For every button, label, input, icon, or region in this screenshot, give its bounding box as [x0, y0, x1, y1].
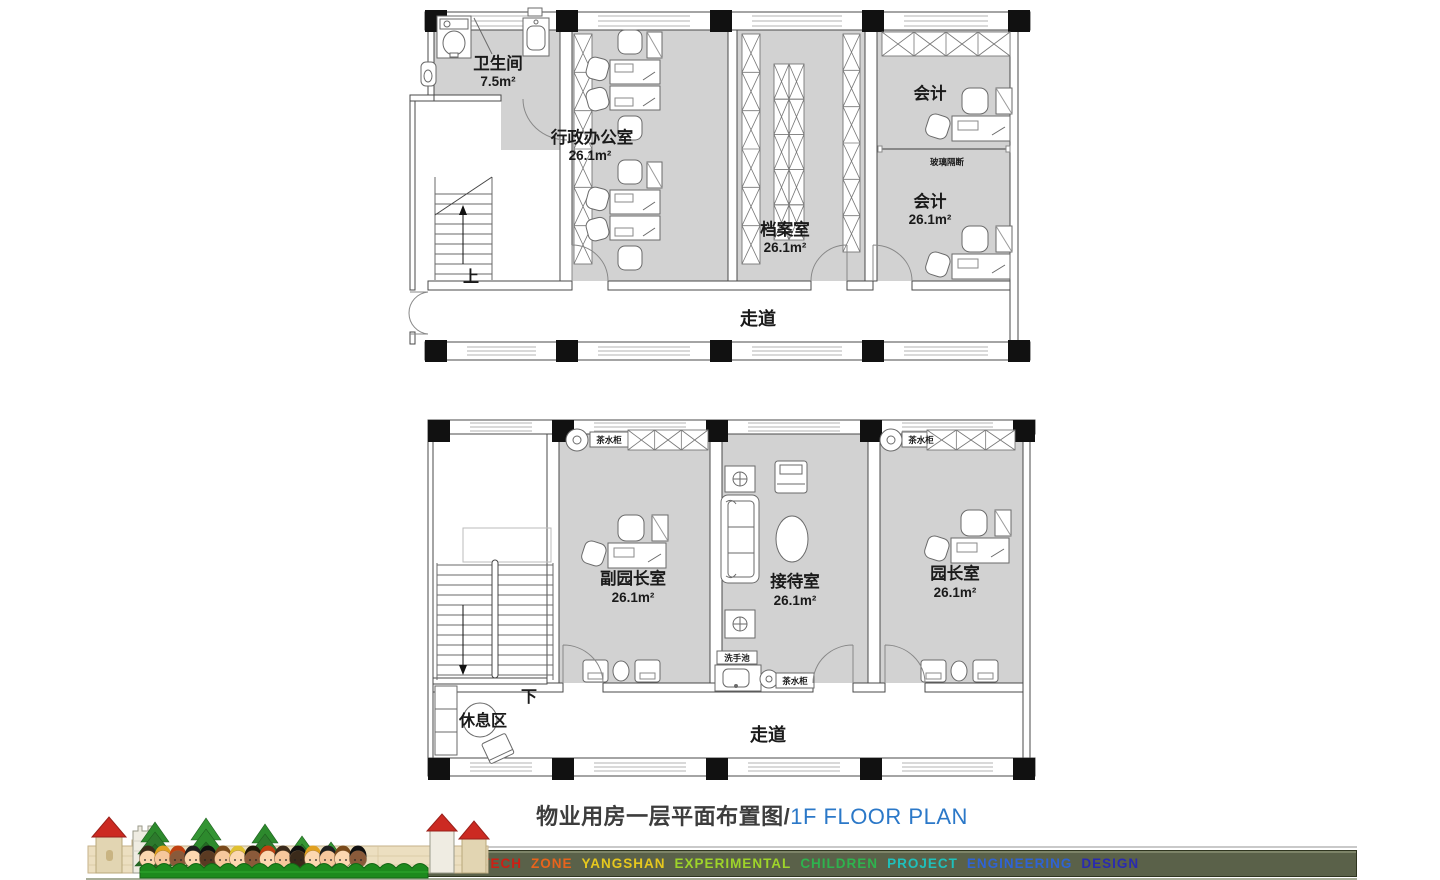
wash-basin [715, 665, 761, 691]
floor-plan-lower: 副园长室 26.1m² 接待室 26.1m² 园长室 26.1m² 走道 下 休… [423, 410, 1040, 782]
room-label: 卫生间 [473, 53, 523, 73]
room-area: 7.5m² [480, 74, 516, 89]
corridor-label: 走道 [750, 724, 786, 745]
room-label: 会计 [914, 191, 948, 211]
children-row [140, 846, 367, 868]
room-area: 26.1m² [934, 585, 977, 600]
room-area: 26.1m² [764, 240, 807, 255]
reception-armchair [775, 461, 807, 493]
room-label: 园长室 [930, 563, 980, 583]
room-area: 26.1m² [909, 212, 952, 227]
archive-rack-center [774, 64, 804, 240]
archive-rack-left [742, 34, 760, 264]
tea-cabinet [927, 430, 1015, 450]
room-label: 档案室 [760, 219, 810, 239]
floor-plan-upper: 卫生间 7.5m² 行政办公室 26.1m² 档案室 26.1m² 会计 会计 … [406, 2, 1038, 364]
visitor-chairs [583, 660, 660, 682]
corner-sink [566, 429, 588, 451]
page-root: 卫生间 7.5m² 行政办公室 26.1m² 档案室 26.1m² 会计 会计 … [0, 0, 1440, 880]
banner-top-line [425, 846, 1357, 848]
urinal [421, 62, 436, 86]
footer-illustration [78, 816, 508, 878]
room-label: 行政办公室 [550, 127, 634, 147]
tea-cabinet-label: 茶水柜 [595, 435, 622, 445]
rest-area-label: 休息区 [458, 711, 507, 730]
footer-banner-text: HIGH-TECHZONEYANGSHANEXPERIMENTALCHILDRE… [438, 851, 1148, 876]
tea-cabinet [628, 430, 708, 450]
castle-tower [92, 817, 126, 873]
room-label: 接待室 [770, 571, 820, 591]
stair-direction: 上 [463, 268, 479, 286]
wash-basin-label: 洗手池 [724, 653, 750, 663]
room-area: 26.1m² [569, 148, 612, 163]
accounting-cabinet [882, 32, 1010, 56]
reception-side-table [725, 610, 755, 638]
stairs-up [435, 177, 492, 280]
banner-word: EXPERIMENTAL [675, 856, 792, 871]
corridor-label: 走道 [740, 308, 776, 329]
banner-word: DESIGN [1081, 856, 1139, 871]
corner-sink [880, 429, 902, 451]
drawing-title-cn: 物业用房一层平面布置图/ [536, 804, 790, 829]
banner-word: YANGSHAN [582, 856, 666, 871]
reception-coffee-table [776, 516, 808, 562]
stair-direction: 下 [521, 689, 537, 706]
room-accounting [877, 30, 1010, 281]
visitor-chairs [921, 660, 998, 682]
reception-sofa [721, 495, 759, 583]
room-area: 26.1m² [612, 590, 655, 605]
water-heater [760, 670, 778, 688]
archive-rack-right [843, 34, 860, 252]
stairs-down [437, 528, 553, 680]
banner-word: CHILDREN [800, 856, 878, 871]
castle-tower [427, 814, 457, 873]
partition-label: 玻璃隔断 [930, 157, 965, 167]
drawing-title-en: 1F FLOOR PLAN [790, 804, 968, 829]
castle-tower [459, 821, 489, 873]
drawing-title: 物业用房一层平面布置图/1F FLOOR PLAN [536, 799, 968, 831]
banner-word: ENGINEERING [967, 856, 1073, 871]
banner-word: ZONE [531, 856, 573, 871]
tea-cabinet-label: 茶水柜 [907, 435, 934, 445]
banner-word: PROJECT [887, 856, 958, 871]
room-area: 26.1m² [774, 593, 817, 608]
toilet [437, 16, 471, 58]
room-label: 副园长室 [600, 568, 666, 588]
room-label: 会计 [914, 83, 948, 103]
tea-cabinet-label: 茶水柜 [781, 676, 808, 686]
reception-side-table [725, 466, 755, 492]
footer-banner: HIGH-TECHZONEYANGSHANEXPERIMENTALCHILDRE… [425, 850, 1357, 877]
